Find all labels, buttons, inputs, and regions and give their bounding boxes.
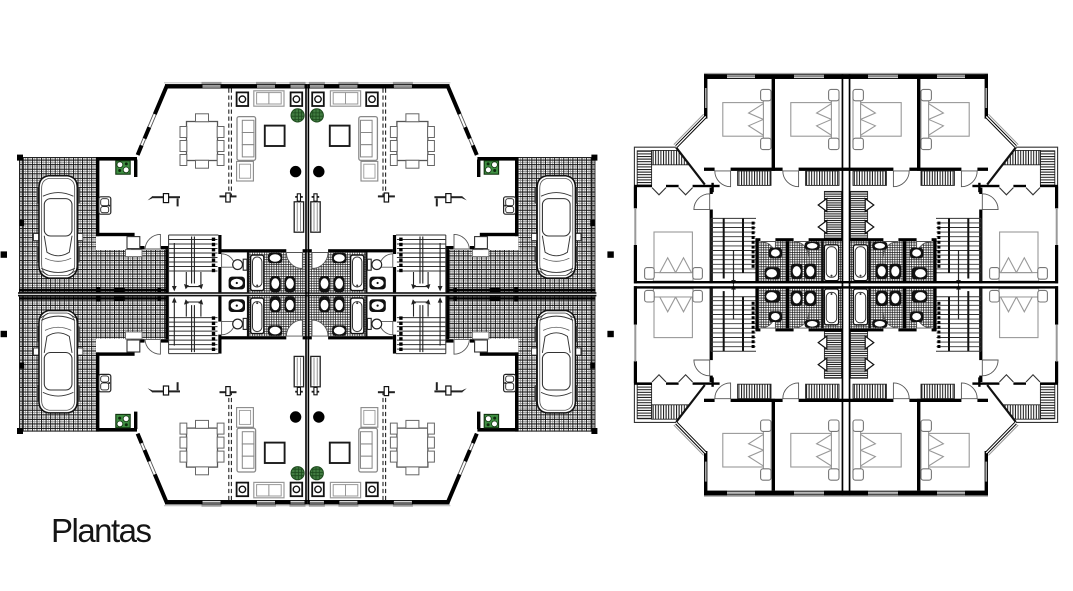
svg-text:Plantas: Plantas — [51, 512, 152, 549]
